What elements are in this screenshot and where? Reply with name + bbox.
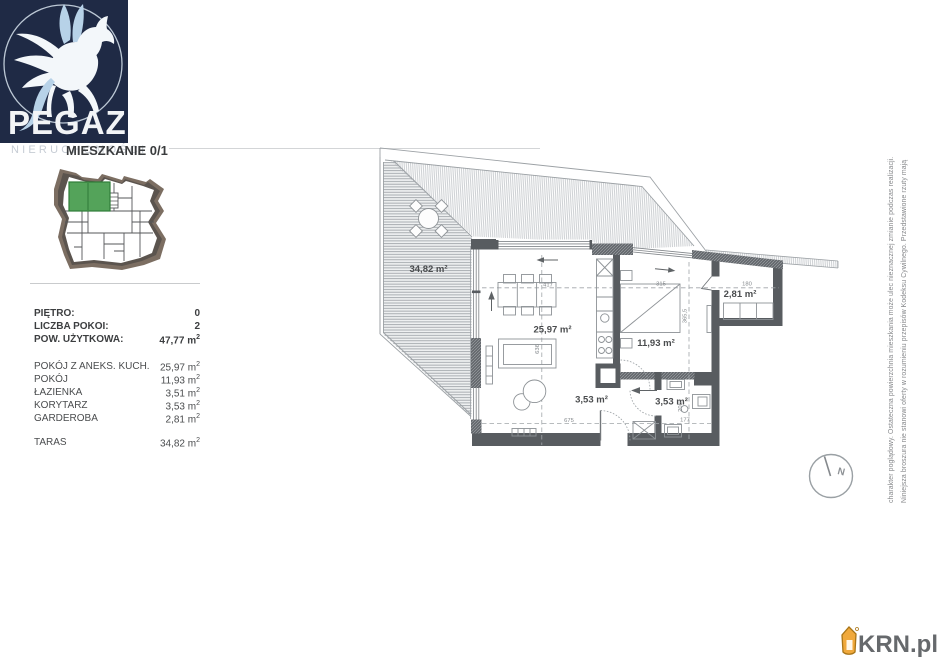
svg-text:180: 180 <box>742 282 752 288</box>
svg-text:25,97 m²: 25,97 m² <box>533 325 571 336</box>
svg-text:675: 675 <box>564 418 574 424</box>
svg-text:177: 177 <box>680 418 690 424</box>
svg-text:11,93 m²: 11,93 m² <box>637 338 675 349</box>
svg-text:205: 205 <box>678 402 684 412</box>
svg-text:3,53 m²: 3,53 m² <box>575 395 608 406</box>
svg-text:2,81 m²: 2,81 m² <box>724 289 757 300</box>
svg-text:365,5: 365,5 <box>683 309 689 324</box>
svg-text:N: N <box>836 466 846 478</box>
svg-text:315: 315 <box>656 282 666 288</box>
svg-text:636: 636 <box>535 344 541 354</box>
svg-text:34,82 m²: 34,82 m² <box>409 264 447 275</box>
svg-text:417: 417 <box>543 283 553 289</box>
